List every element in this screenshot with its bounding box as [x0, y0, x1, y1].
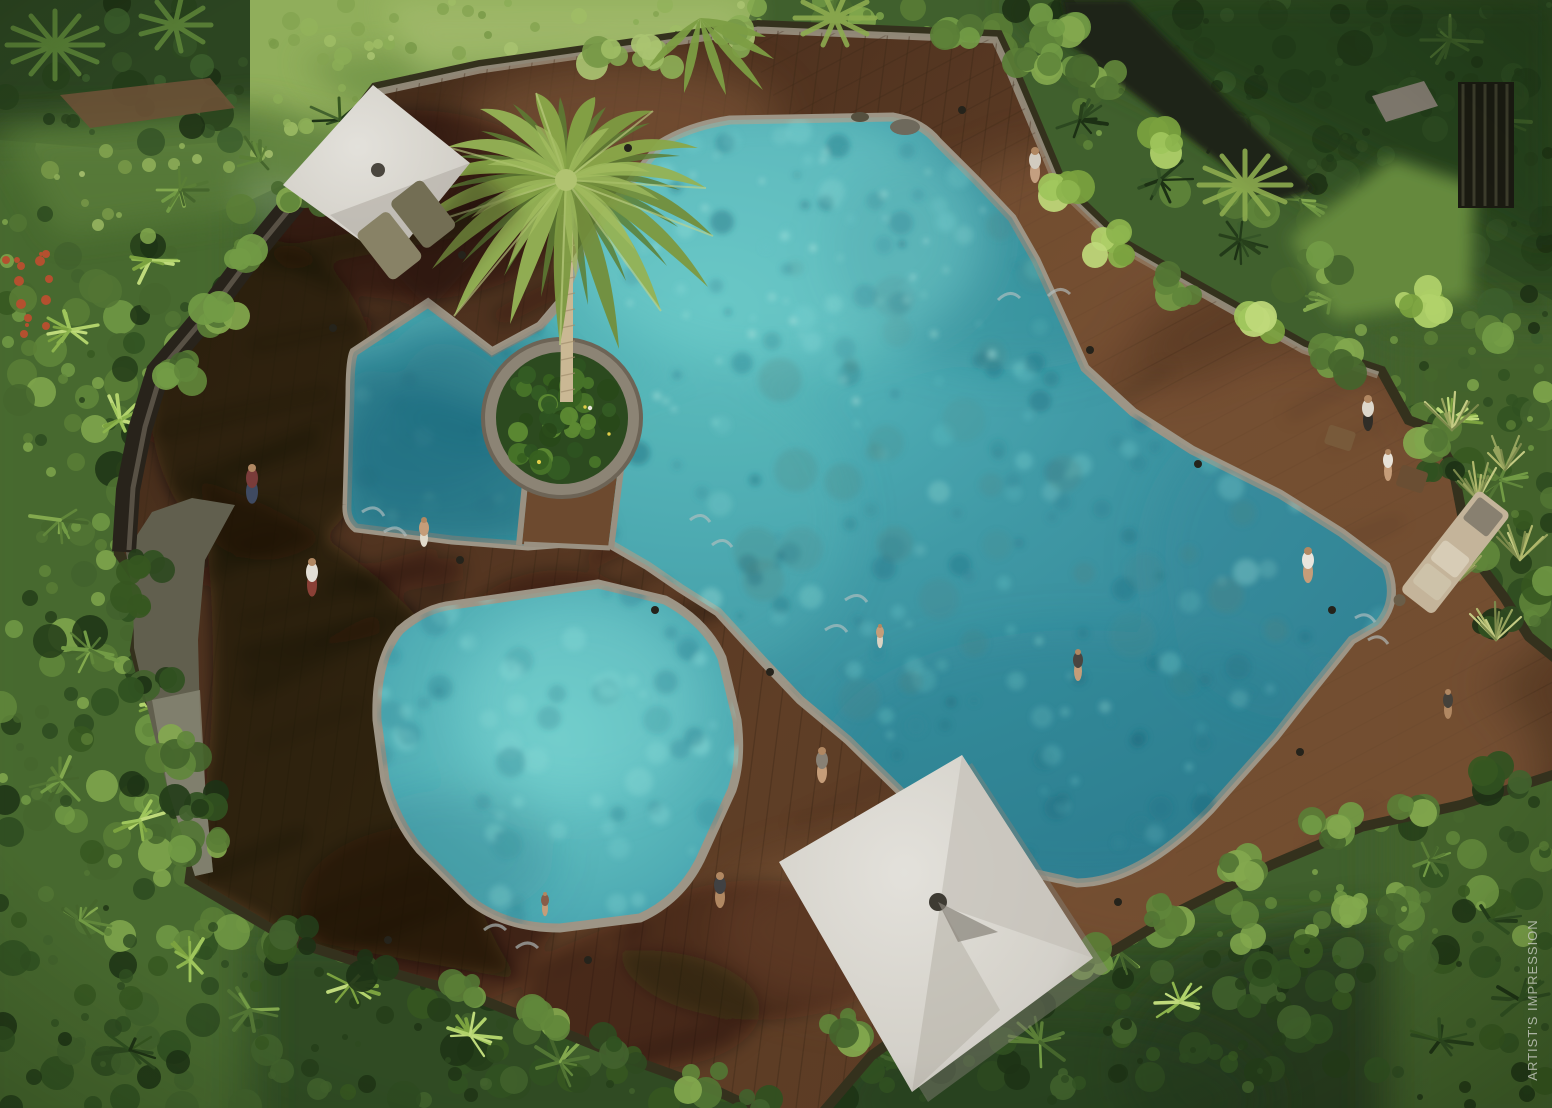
svg-text:ARTIST'S IMPRESSION: ARTIST'S IMPRESSION [1525, 919, 1540, 1080]
